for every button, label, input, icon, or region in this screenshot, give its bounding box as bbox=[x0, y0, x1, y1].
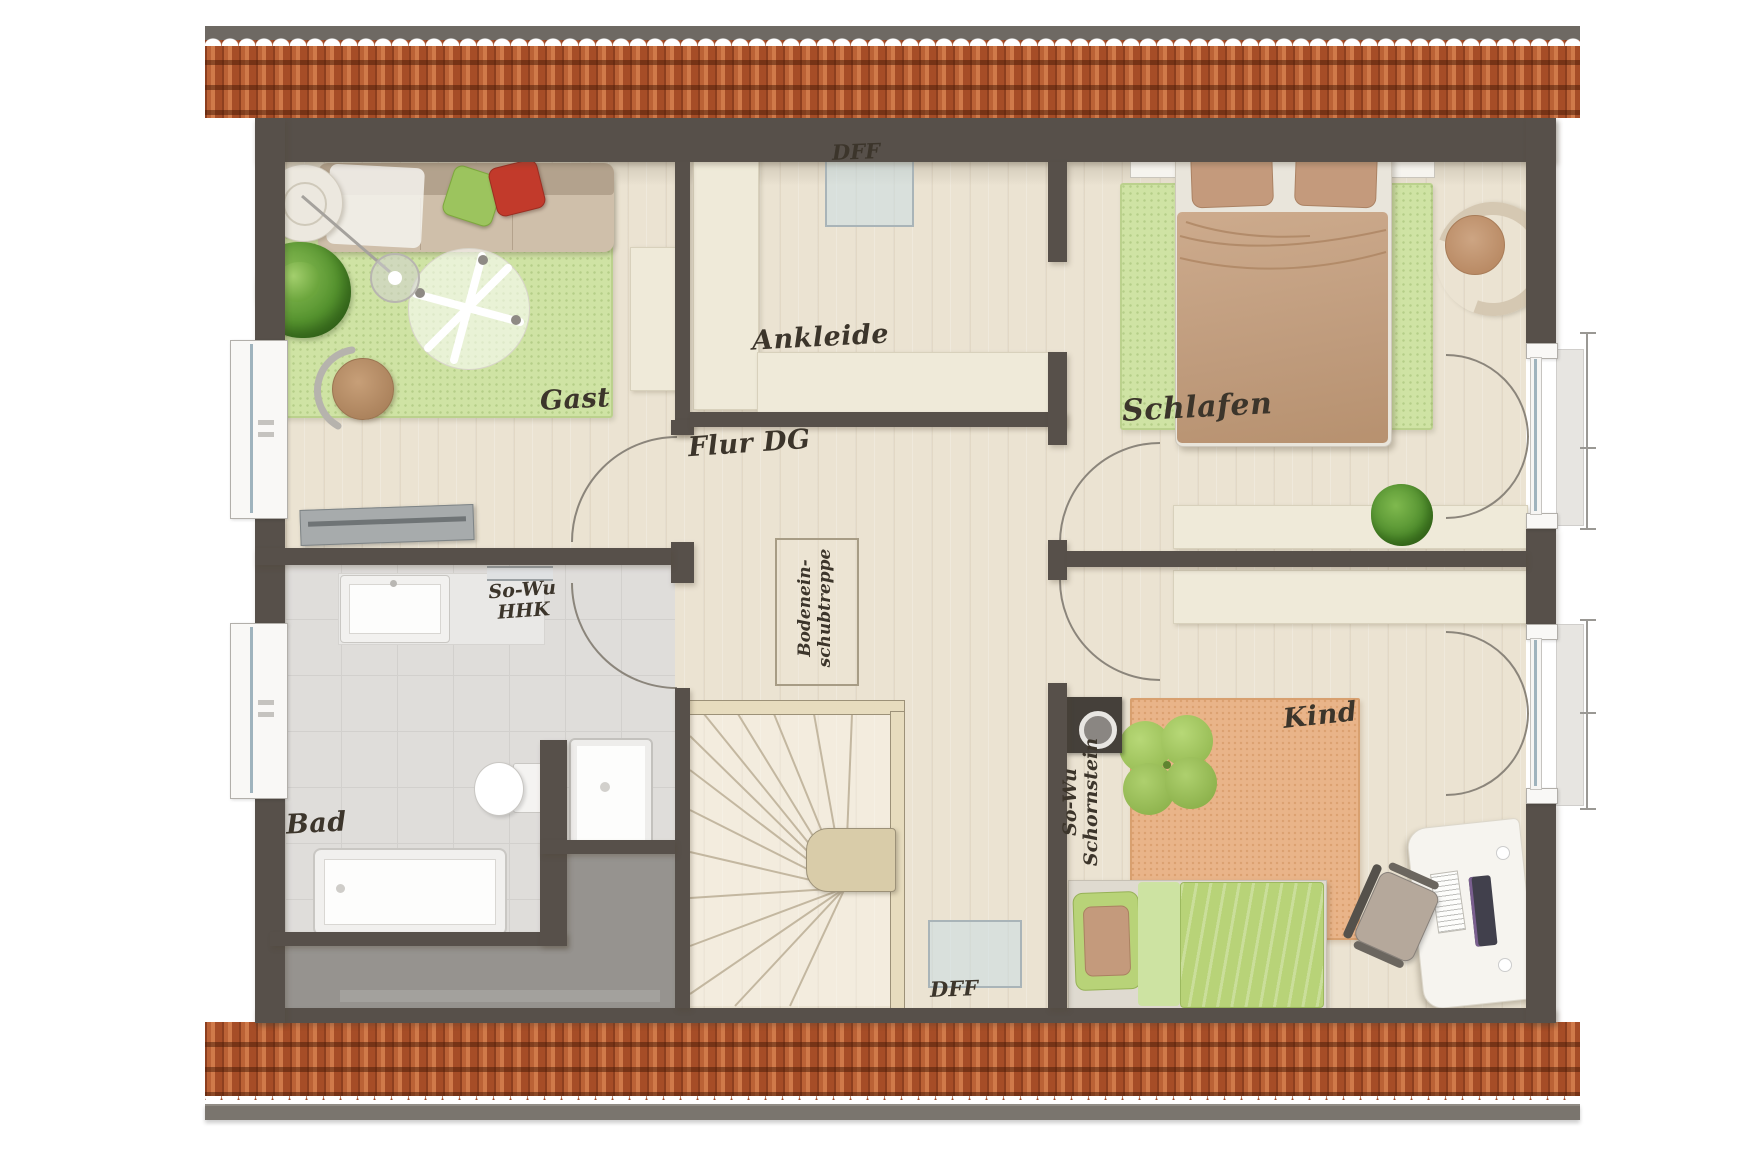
stair-newel bbox=[806, 828, 896, 892]
wall-gast-ankleide bbox=[675, 162, 690, 435]
annotation-attic-hatch-line1: Bodenein- bbox=[795, 523, 815, 693]
annotation-dff-top: DFF bbox=[832, 138, 881, 165]
door-arc-gast bbox=[572, 437, 677, 542]
wall-outer-bottom bbox=[255, 1008, 1556, 1023]
wall-center-2 bbox=[1048, 352, 1067, 445]
wall-gast-bad bbox=[255, 548, 671, 565]
balcony-threshold-schlafen bbox=[1556, 349, 1584, 526]
wall-outer-top bbox=[255, 118, 1556, 162]
balcony-rail-tick bbox=[1580, 447, 1596, 449]
annotation-dff-bottom: DFF bbox=[930, 975, 979, 1002]
wall-center-3 bbox=[1048, 540, 1067, 580]
floorplan-attic: Gast Ankleide Schlafen Flur DG Bad Kind … bbox=[0, 0, 1754, 1175]
wall-center-1 bbox=[1048, 162, 1067, 262]
wall-bad-storage bbox=[270, 932, 567, 946]
stair-railing-top bbox=[688, 700, 905, 715]
balcony-rail-tick bbox=[1580, 712, 1596, 714]
wall-schlafen-kind bbox=[1067, 551, 1526, 567]
window-left-2 bbox=[230, 623, 288, 799]
window-left-2-glass bbox=[250, 627, 253, 793]
balcony-threshold-kind bbox=[1556, 624, 1584, 806]
wall-outer-right-1 bbox=[1526, 118, 1556, 343]
door-arc-schlafen bbox=[1060, 443, 1160, 543]
pouf bbox=[332, 358, 394, 420]
window-left-1-handle bbox=[258, 420, 274, 425]
balcony-rail-schlafen bbox=[1586, 333, 1588, 530]
door-arc-balcony-schlafen-2 bbox=[1446, 436, 1528, 518]
window-left-2-handle bbox=[258, 712, 274, 717]
door-arc-balcony-kind-2 bbox=[1446, 713, 1528, 795]
balcony-door-kind-glass bbox=[1534, 640, 1537, 786]
wall-outer-right-2 bbox=[1526, 527, 1556, 624]
annotation-attic-hatch: Bodenein- schubtreppe bbox=[795, 523, 835, 693]
duvet-folds bbox=[1180, 222, 1386, 269]
balcony-rail-kind bbox=[1586, 620, 1588, 810]
door-arc-kind bbox=[1060, 580, 1160, 680]
wall-ankleide-flur bbox=[690, 412, 1067, 427]
annotation-schornstein-line1: So-Wu bbox=[1060, 712, 1081, 892]
balcony-jamb-kind-bottom bbox=[1526, 788, 1558, 804]
wall-outer-left-2 bbox=[255, 517, 285, 623]
window-left-1 bbox=[230, 340, 288, 519]
room-label-gast: Gast bbox=[539, 382, 611, 417]
annotation-attic-hatch-line2: schubtreppe bbox=[815, 523, 835, 693]
coffee-table-top bbox=[415, 255, 521, 360]
door-arc-balcony-schlafen-1 bbox=[1446, 355, 1528, 437]
annotation-schornstein-line2: Schornstein bbox=[1081, 712, 1102, 892]
door-arc-balcony-kind-1 bbox=[1446, 632, 1528, 714]
room-label-bad: Bad bbox=[285, 806, 347, 840]
balcony-rail-tick bbox=[1580, 808, 1596, 810]
wall-outer-left-1 bbox=[255, 118, 285, 340]
annotation-so-wu-hhk: So-Wu HHK bbox=[477, 577, 570, 625]
door-arc-bad bbox=[572, 583, 677, 688]
window-left-2-handle bbox=[258, 700, 274, 705]
window-left-1-handle bbox=[258, 432, 274, 437]
wall-node-bad bbox=[671, 542, 694, 583]
wall-shower-storage bbox=[540, 840, 675, 854]
wall-outer-left-3 bbox=[255, 797, 285, 1023]
window-left-1-glass bbox=[250, 344, 253, 513]
annotation-schornstein: So-Wu Schornstein bbox=[1060, 712, 1102, 892]
balcony-door-schlafen-glass bbox=[1534, 359, 1537, 511]
balcony-jamb-schlafen-bottom bbox=[1526, 513, 1558, 529]
wall-stair-west bbox=[675, 688, 690, 1008]
balcony-rail-tick bbox=[1580, 332, 1596, 334]
arc-lamp-bulb bbox=[388, 271, 402, 285]
wall-outer-right-3 bbox=[1526, 802, 1556, 1023]
balcony-rail-tick bbox=[1580, 619, 1596, 621]
arc-lamp-rod bbox=[302, 196, 390, 272]
balcony-rail-tick bbox=[1580, 528, 1596, 530]
